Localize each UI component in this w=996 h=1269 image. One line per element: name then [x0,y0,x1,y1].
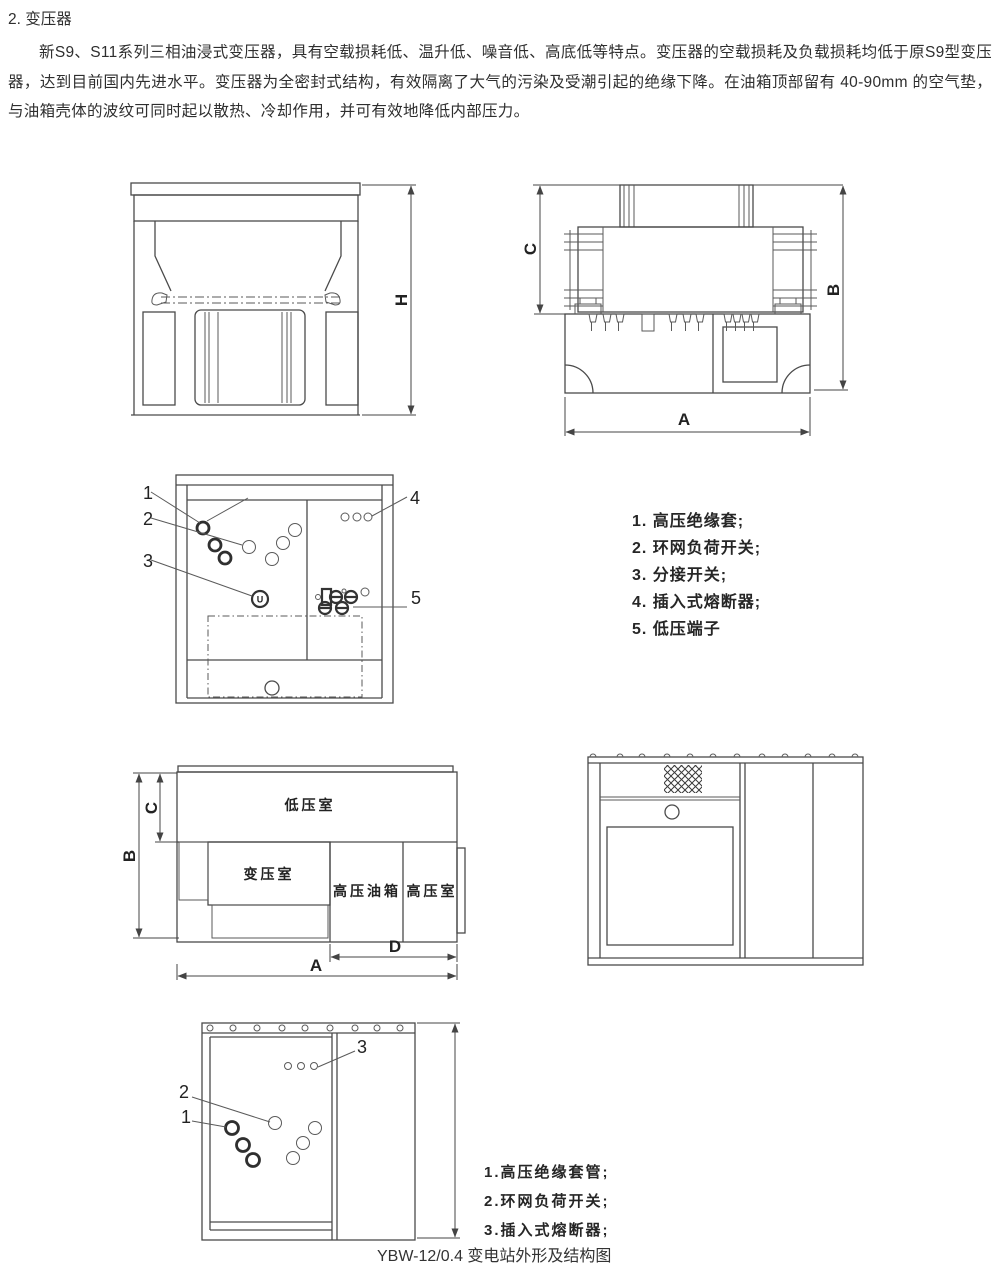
callout-2: 2 [179,1082,189,1102]
legend-item: 2.环网负荷开关; [484,1187,610,1216]
legend-item: 3. 分接开关; [632,562,761,589]
callout-3: 3 [143,551,153,571]
callout-5: 5 [411,588,421,608]
callout-4: 4 [410,488,420,508]
figure-caption: YBW-12/0.4 变电站外形及结构图 [377,1242,611,1266]
intro-text-block: 2. 变压器 新S9、S11系列三相油浸式变压器，具有空载损耗低、温升低、噪音低… [8,8,992,127]
transformer-structure-diagram: U 1 2 3 4 5 [130,465,450,740]
dim-label-a: A [678,410,690,429]
callout-3: 3 [357,1037,367,1057]
room-hv-oil-tank: 高压油箱 [333,883,401,899]
intro-paragraph: 新S9、S11系列三相油浸式变压器，具有空载损耗低、温升低、噪音低、高底低等特点… [8,38,992,127]
top-view-outline [533,185,843,393]
tap-switch: U [252,591,268,607]
legend-item: 4. 插入式熔断器; [632,589,761,616]
plan-room-labels: 低压室 变压室 高压油箱 高压室 [244,797,458,899]
station-cabinet-diagram [580,748,875,978]
section-title: 2. 变压器 [8,8,992,32]
callout-1: 1 [143,483,153,503]
transformer-top-view-diagram: C B A [520,172,865,447]
front-view-outline [131,175,388,415]
lv-terminal-cluster [316,588,370,614]
station-callouts: 3 2 1 [179,1037,367,1127]
room-transformer: 变压室 [244,866,295,882]
legend-item: 1. 高压绝缘套; [632,508,761,535]
transformer-legend: 1. 高压绝缘套; 2. 环网负荷开关; 3. 分接开关; 4. 插入式熔断器;… [632,508,761,643]
legend-item: 5. 低压端子 [632,616,761,643]
room-low-voltage: 低压室 [284,797,336,813]
fuse-holes [341,513,372,521]
dim-label-b: B [824,284,843,296]
hv-bushing-circles [226,1117,322,1167]
hv-bushing-circles [197,522,302,566]
cabinet-outline [588,754,863,965]
front-view-dimension-h: H [362,185,416,415]
top-view-dimensions: C B A [521,186,848,436]
drain-hole [265,681,279,695]
station-legend: 1.高压绝缘套管; 2.环网负荷开关; 3.插入式熔断器; [484,1158,610,1245]
structure-outline [176,475,393,703]
dim-label-h: H [392,294,411,306]
station-plan-diagram: 低压室 变压室 高压油箱 高压室 B C D A [115,750,480,985]
legend-item: 2. 环网负荷开关; [632,535,761,562]
tap-switch-glyph: U [257,595,264,605]
louver-door [607,827,733,945]
dim-label-b: B [120,850,139,862]
structure-callouts: 1 2 3 4 5 [143,483,421,608]
plan-outline [177,766,465,942]
dim-label-a: A [310,956,322,975]
station-front-diagram: 3 2 1 [165,1010,465,1250]
station-outline [202,1023,415,1240]
dim-label-d: D [389,937,401,956]
legend-item: 1.高压绝缘套管; [484,1158,610,1187]
fuse-holes [285,1063,318,1070]
callout-2: 2 [143,509,153,529]
room-hv: 高压室 [407,883,458,899]
legend-item: 3.插入式熔断器; [484,1216,610,1245]
dim-label-c: C [142,802,161,814]
station-height-dimension [417,1023,460,1238]
transformer-front-view-diagram: H [110,175,430,430]
vent-grille [664,765,702,793]
door-lock [665,805,679,819]
dim-label-c: C [521,243,540,255]
callout-1: 1 [181,1107,191,1127]
bushings-row [589,314,759,331]
roof-hinges [207,1025,403,1031]
